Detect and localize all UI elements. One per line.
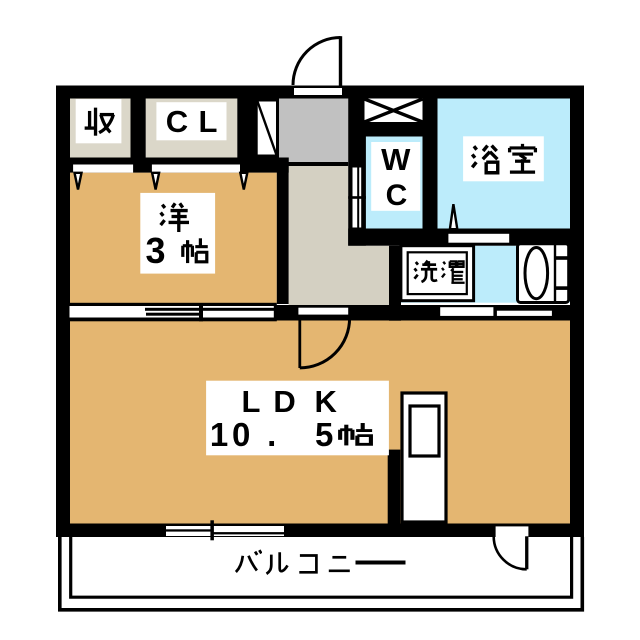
svg-text:K: K xyxy=(315,384,338,419)
svg-text:L: L xyxy=(242,384,261,419)
svg-text:.: . xyxy=(267,416,276,453)
svg-text:C: C xyxy=(386,179,408,212)
svg-text:0: 0 xyxy=(232,416,250,453)
svg-text:3: 3 xyxy=(145,230,165,271)
svg-text:D: D xyxy=(273,384,295,419)
svg-text:L: L xyxy=(199,104,218,139)
svg-text:C: C xyxy=(166,104,188,139)
svg-text:5: 5 xyxy=(315,416,333,453)
svg-text:W: W xyxy=(381,142,411,177)
svg-text:1: 1 xyxy=(210,416,228,453)
